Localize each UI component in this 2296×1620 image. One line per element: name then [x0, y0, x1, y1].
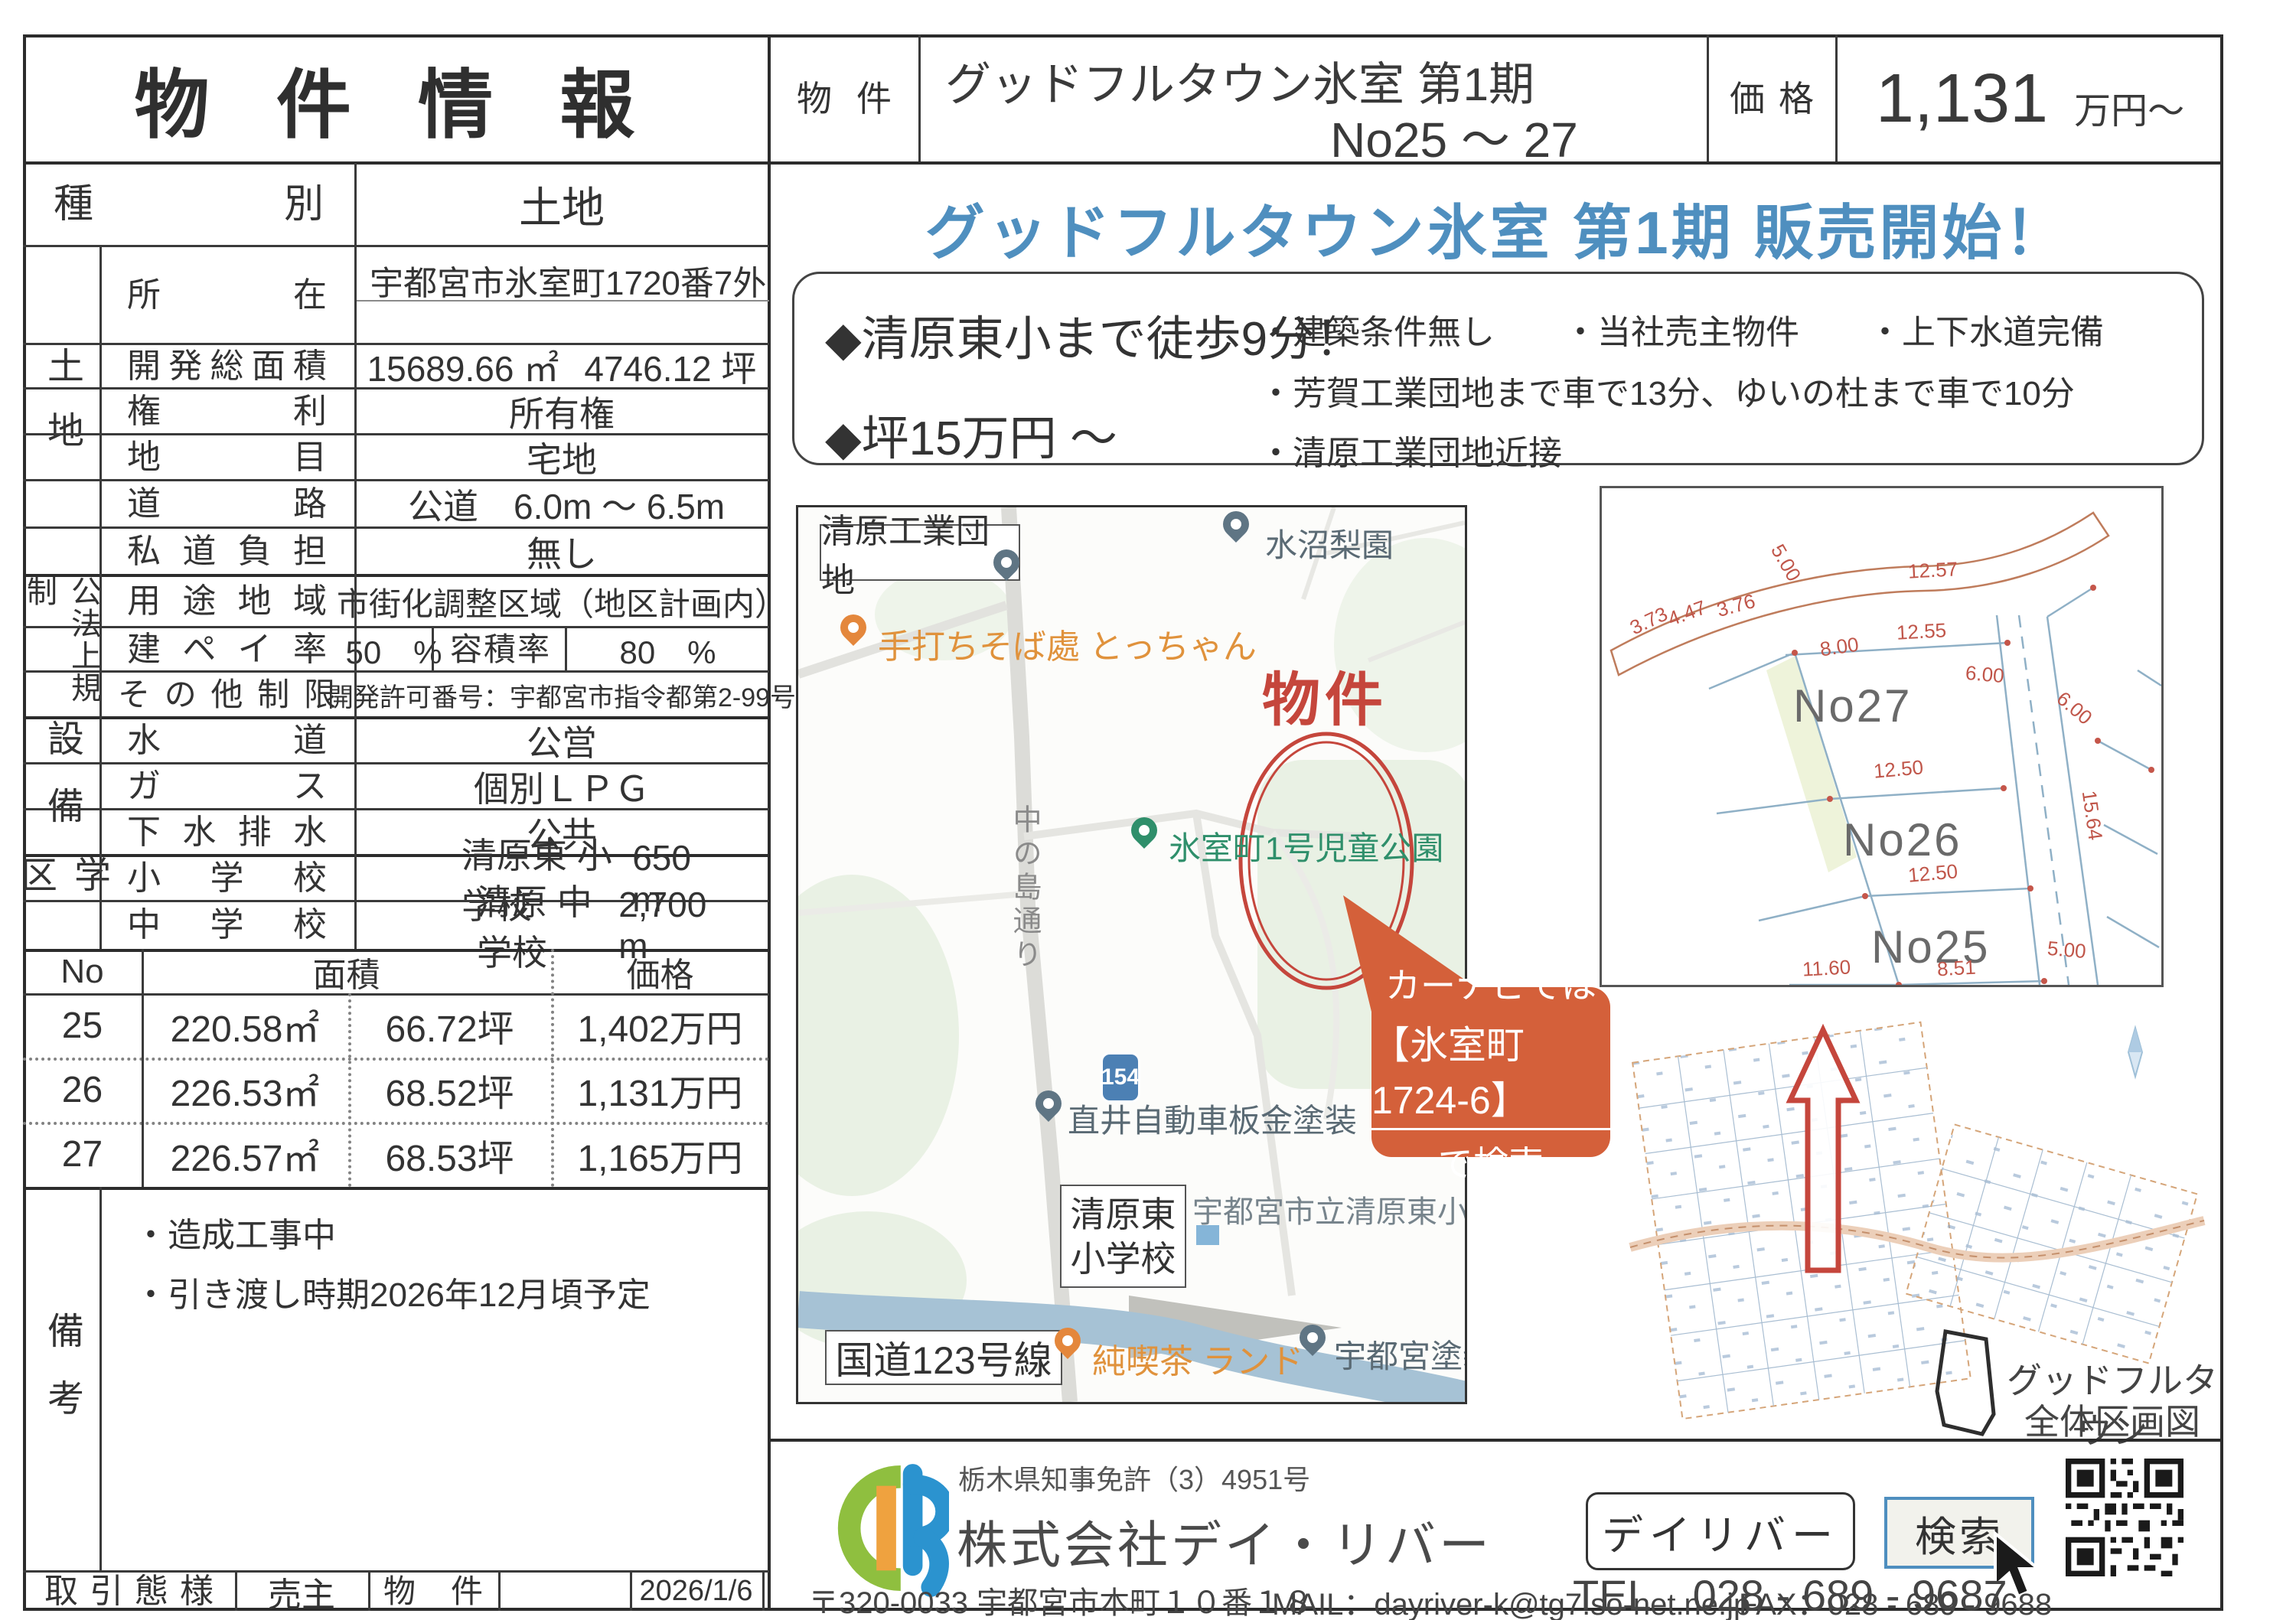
- lot-row-price: 1,402万円: [551, 993, 769, 1058]
- fax-text: FAX：028 - 689 - 9688: [1739, 1579, 2052, 1620]
- area-tsubo: 4746.12 坪: [584, 341, 756, 392]
- group-gakku: 学区: [23, 856, 99, 949]
- price-unit: 万円～: [2074, 80, 2184, 134]
- promo-headline: グッドフルタウン氷室 第1期 販売開始！: [769, 185, 2223, 271]
- row-kaihatsu-value: 15689.66 ㎡ 4746.12 坪: [354, 344, 769, 389]
- dim-label: 12.50: [1907, 859, 1959, 888]
- row-yoto-label: 用途地域: [99, 575, 354, 627]
- row-suido-value: 公営: [354, 718, 769, 764]
- pear-farm-label: 水沼梨園: [1265, 520, 1394, 566]
- biko-item-1: ・造成工事中: [134, 1208, 336, 1257]
- lot-no27-label: No27: [1793, 680, 1912, 732]
- feature-point-2: ◆坪15万円 ～: [825, 399, 1117, 468]
- dim-label: 12.57: [1907, 557, 1958, 583]
- lot-row-tsubo: 68.53坪: [348, 1122, 551, 1187]
- bukken-label: 物件: [1262, 653, 1388, 737]
- company-name: 株式会社デイ・リバー: [957, 1504, 1492, 1578]
- bullet-seller: ・当社売主物件: [1564, 305, 1799, 354]
- cafe-label: 純喫茶 ランド: [1092, 1334, 1303, 1383]
- school-line2: 小学校: [1071, 1237, 1176, 1281]
- bullet-water: ・上下水道完備: [1868, 305, 2104, 354]
- paint-shop-label: 宇都宮塗装: [1334, 1331, 1467, 1377]
- kokudo-label-box: 国道123号線: [825, 1330, 1062, 1385]
- school-official-label: 宇都宮市立清原東小: [1192, 1187, 1467, 1231]
- lot-row-tsubo: 68.52坪: [348, 1058, 551, 1122]
- row-yoto-value: 市街化調整区域（地区計画内）: [354, 575, 769, 627]
- property-name-label: 物件名: [769, 34, 919, 163]
- group-koho: 公法上規制: [23, 575, 99, 718]
- row-gas-label: ガス: [99, 764, 354, 810]
- row-chimoku-label: 地目: [99, 435, 354, 481]
- lot-row-no: 27: [23, 1122, 142, 1187]
- row-shido-label: 私道負担: [99, 528, 354, 575]
- torihiki-value: 売主: [235, 1572, 368, 1611]
- industrial-park-label: 清原工業団地: [820, 524, 1020, 581]
- lot-no26-label: No26: [1843, 813, 1962, 866]
- row-suido-label: 水道: [99, 718, 354, 764]
- row-kenri-value: 所有権: [354, 389, 769, 435]
- row-shido-value: 無し: [354, 528, 769, 575]
- feature-bullets-row1: ・建築条件無し ・当社売主物件 ・上下水道完備: [1259, 305, 2104, 354]
- group-setsubi: 設備: [23, 718, 99, 856]
- road-name-label: 中の島通り: [1003, 804, 1045, 973]
- property-flyer: 物 件 情 報 物件名 グッドフルタウン氷室 第1期 No25 ～ 27 価格 …: [0, 0, 2296, 1620]
- row-gesui-label: 下水排水: [99, 810, 354, 856]
- date-value: 2026/1/6: [630, 1572, 762, 1611]
- row-yoseki-label: 容積率: [433, 627, 566, 672]
- price-value: 1,131: [1876, 60, 2048, 139]
- biko-item-2: ・引き渡し時期2026年12月頃予定: [134, 1267, 651, 1316]
- bullet-no-conditions: ・建築条件無し: [1259, 305, 1495, 354]
- feature-bullet-3: ・清原工業団地近接: [1259, 425, 1562, 474]
- row-kaihatsu-label: 開発総面積: [99, 344, 354, 389]
- route-shield: 154: [1101, 1052, 1140, 1103]
- lot-row-no: 25: [23, 993, 142, 1058]
- row-shubetsu-value: 土地: [354, 163, 769, 246]
- row-shogakko-label: 小学校: [99, 856, 354, 901]
- row-doro-value: 公道 6.0m ～ 6.5m: [354, 481, 769, 528]
- navi-line3: で検索: [1438, 1136, 1544, 1187]
- address-text: 〒320-0033 宇都宮市本町１０番１８: [808, 1578, 1313, 1620]
- license-text: 栃木県知事免許（3）4951号: [958, 1458, 1310, 1498]
- row-shozai-value: 宇都宮市氷室町1720番7外: [370, 256, 769, 305]
- brand-name: デイリバー: [1602, 1501, 1839, 1562]
- row-shozai-label: 所在: [99, 246, 354, 344]
- navi-line1: カーナビでは: [1385, 958, 1596, 1009]
- dim-label: 8.51: [1936, 956, 1976, 982]
- dim-label: 11.60: [1802, 955, 1851, 981]
- mail-text: MAIL：dayriver-k@tg7.so-net.ne.jp: [1272, 1579, 1750, 1620]
- lot-row-sqm: 226.53㎡: [142, 1058, 348, 1122]
- row-sonota-label: その他制限: [99, 672, 354, 718]
- lot-header-area: 面積: [142, 950, 551, 993]
- navi-line2: 【氷室町1724-6】: [1371, 1015, 1610, 1130]
- lot-header-price: 価格: [551, 950, 769, 993]
- dim-label: 12.55: [1896, 618, 1947, 644]
- group-biko: 備考: [23, 1187, 99, 1570]
- row-doro-label: 道路: [99, 481, 354, 528]
- row-yoseki-value: 80 %: [566, 627, 769, 672]
- row-shubetsu-label: 種別: [23, 163, 354, 246]
- school-label-box: 清原東 小学校: [1060, 1185, 1186, 1288]
- school-line1: 清原東: [1071, 1192, 1176, 1237]
- row-chimoku-value: 宅地: [354, 435, 769, 481]
- lot-header-no: No: [23, 950, 142, 993]
- lot-row-no: 26: [23, 1058, 142, 1122]
- qr-code: [2063, 1459, 2186, 1576]
- row-gas-value: 個別ＬＰＧ: [354, 764, 769, 810]
- torihiki-label: 取引態様: [23, 1572, 235, 1611]
- row-sonota-value: 開発許可番号：宇都宮市指令都第2-99号: [354, 672, 769, 718]
- lot-row-tsubo: 66.72坪: [348, 993, 551, 1058]
- bukken-no-label: 物件 NO: [368, 1572, 498, 1611]
- lot-row-sqm: 220.58㎡: [142, 993, 348, 1058]
- row-chugakko-value: 清原 中学校 2,700 m: [354, 901, 769, 949]
- brand-search-box: デイリバー: [1586, 1492, 1855, 1570]
- price-value-wrap: 1,131 万円～: [1837, 34, 2223, 163]
- feature-bullet-2: ・芳賀工業団地まで車で13分、ゆいの杜まで車で10分: [1259, 366, 2075, 415]
- soba-label: 手打ちそば處 とっちゃん: [878, 619, 1257, 668]
- industrial-park-text: 清原工業団地: [821, 505, 1019, 601]
- price-label: 価格: [1707, 34, 1837, 163]
- zentai-title-line2: 全体区画図: [1990, 1394, 2235, 1445]
- lot-row-sqm: 226.57㎡: [142, 1122, 348, 1187]
- row-kenpei-label: 建ペイ率: [99, 627, 354, 672]
- lot-row-price: 1,131万円: [551, 1058, 769, 1122]
- park-label: 氷室町1号児童公園: [1169, 823, 1443, 869]
- page-title: 物 件 情 報: [23, 34, 769, 163]
- dim-label: 12.50: [1873, 755, 1925, 784]
- dim-label: 6.00: [1965, 661, 2005, 688]
- area-sqm: 15689.66 ㎡: [367, 341, 559, 392]
- row-chugakko-label: 中学校: [99, 901, 354, 949]
- row-kenpei-value: 50 %: [354, 627, 433, 672]
- survey-drawing: [1602, 488, 2161, 985]
- lot-survey-diagram: No27 No26 No25 12.57 3.73 4.47 3.76 5.00…: [1600, 486, 2164, 987]
- row-kenri-label: 権利: [99, 389, 354, 435]
- kokudo-text: 国道123号線: [835, 1330, 1052, 1385]
- lot-row-price: 1,165万円: [551, 1122, 769, 1187]
- route-number: 154: [1101, 1064, 1140, 1090]
- dim-label: 5.00: [2047, 937, 2087, 963]
- navi-callout: カーナビでは 【氷室町1724-6】 で検索: [1371, 987, 1610, 1157]
